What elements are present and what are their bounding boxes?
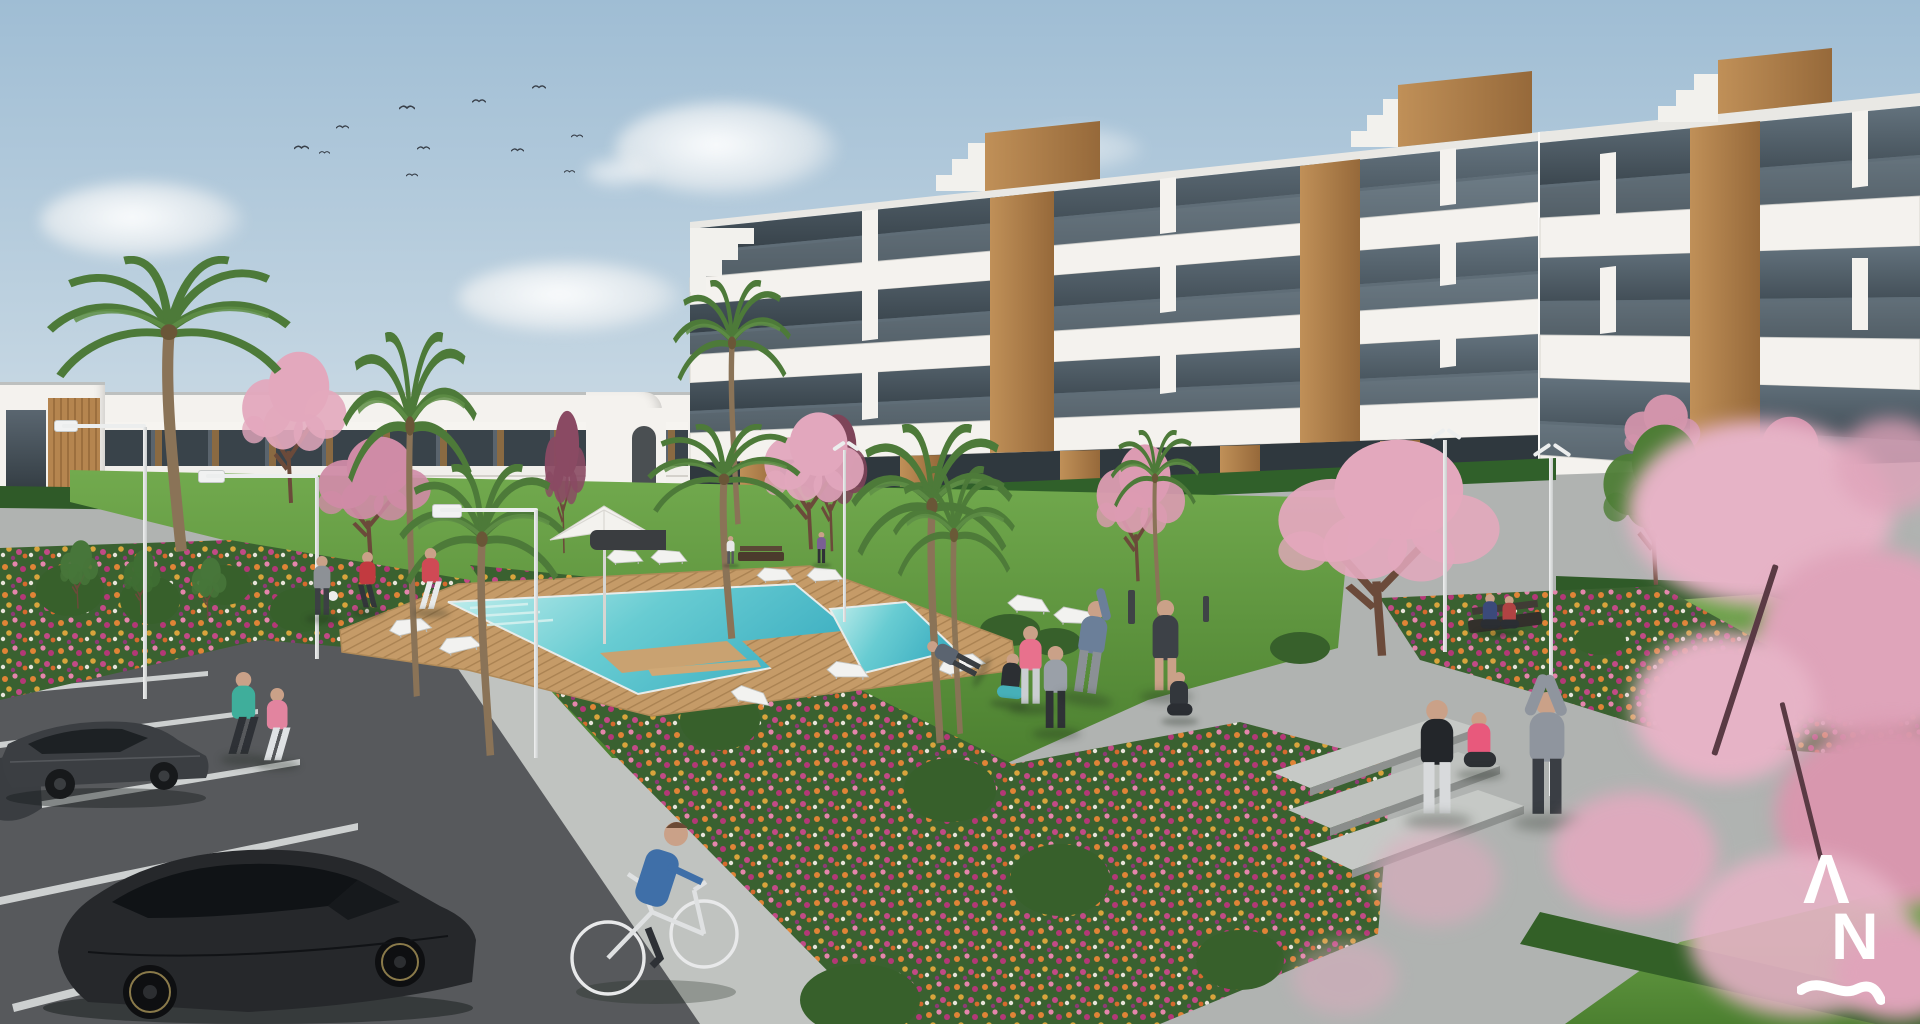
person-seated-steps: [1460, 712, 1498, 773]
render-scene: Λ N: [0, 0, 1920, 1024]
palm-tree: [1110, 430, 1200, 620]
person-seated-crosslegged: [1164, 672, 1194, 720]
person-standing-trackpants: [1410, 700, 1464, 819]
car-hatchback: [28, 832, 488, 1024]
person-standing: [724, 536, 737, 565]
person-walking: [814, 532, 829, 565]
person-jogger: [260, 688, 294, 764]
green-tree-small: [186, 552, 230, 620]
foreground-blossom: [1292, 940, 1397, 1015]
foreground-blossom: [1374, 830, 1499, 925]
person-jogger: [224, 672, 263, 758]
person-stretching-leg: [354, 552, 381, 611]
palm-tree: [45, 256, 293, 556]
logo-mark-bottom: N: [1831, 906, 1879, 966]
person-with-ball: [308, 556, 336, 618]
person-deck-jogger: [416, 548, 445, 612]
person-on-bench: [1498, 596, 1520, 632]
car-sedan: [0, 706, 214, 812]
logo-wave-icon: [1797, 974, 1885, 1008]
person-overhead-stretch: [1518, 692, 1576, 820]
parasol: [546, 504, 666, 654]
foreground-blossom: [1632, 632, 1817, 782]
palm-tree: [646, 424, 802, 642]
foreground-blossom: [1552, 792, 1717, 917]
developer-logo: Λ N: [1793, 848, 1903, 1018]
cyclist: [556, 762, 766, 1012]
